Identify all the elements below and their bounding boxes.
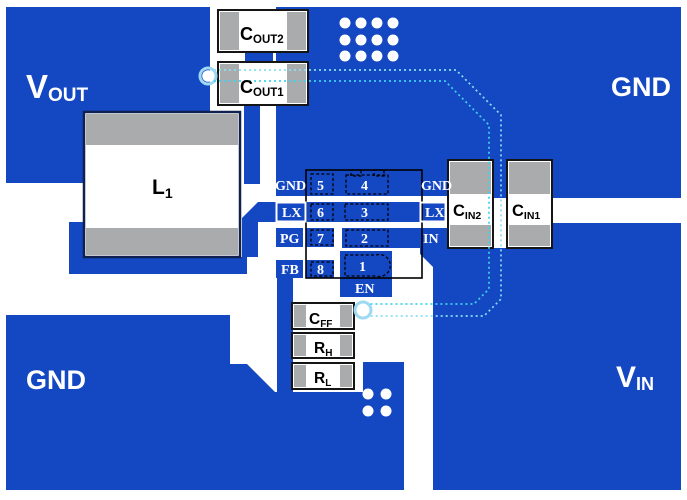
pin6-lx-label: LX bbox=[282, 206, 301, 221]
pin2-number: 2 bbox=[361, 232, 368, 247]
pin7-number: 7 bbox=[317, 232, 324, 247]
pin5-number: 5 bbox=[317, 179, 324, 194]
inductor-pedestal-pad bbox=[69, 257, 247, 274]
vin-copper-pour bbox=[420, 248, 681, 490]
rl-right-terminal bbox=[340, 365, 352, 387]
rl-left-terminal bbox=[294, 365, 306, 387]
rh-left-terminal bbox=[294, 335, 306, 356]
vout-sense-via bbox=[200, 68, 216, 84]
pin5-gnd-label: GND bbox=[275, 179, 306, 194]
pin8-fb-label: FB bbox=[281, 263, 299, 278]
pcb-board-svg: VOUT GND GND VIN COUT2 COUT1 L1 CIN2 CIN… bbox=[0, 0, 687, 500]
vin-pour-right-of-cin1 bbox=[552, 223, 681, 249]
pin3-lx-label: LX bbox=[425, 206, 444, 221]
gnd-top-right-net-label: GND bbox=[611, 72, 671, 102]
gnd-bottom-left-net-label: GND bbox=[26, 365, 86, 395]
cin2-bottom-terminal bbox=[450, 225, 491, 246]
pin2-in-label: IN bbox=[423, 232, 439, 247]
pin4-gnd-label: GND bbox=[421, 179, 452, 194]
cff-right-terminal bbox=[340, 305, 352, 327]
cin1-top-terminal bbox=[509, 162, 550, 194]
pin6-number: 6 bbox=[317, 206, 324, 221]
inductor-pedestal-left-arm bbox=[69, 222, 84, 258]
pin1-en-label: EN bbox=[355, 282, 374, 297]
cin2-top-terminal bbox=[450, 162, 491, 194]
cff-left-terminal bbox=[294, 305, 306, 327]
pin7-pg-label: PG bbox=[280, 232, 300, 247]
cin1-bottom-terminal bbox=[509, 225, 550, 246]
cout2-right-terminal bbox=[287, 12, 306, 50]
pin1-number: 1 bbox=[359, 260, 366, 275]
fb-trace-to-divider bbox=[277, 278, 293, 392]
pcb-layout-diagram: VOUT GND GND VIN COUT2 COUT1 L1 CIN2 CIN… bbox=[0, 0, 687, 500]
lx-limb-to-inductor bbox=[242, 202, 258, 257]
pin4-number: 4 bbox=[361, 179, 368, 194]
cout2-left-terminal bbox=[220, 12, 239, 50]
l1-top-terminal bbox=[86, 114, 238, 145]
pin3-number: 3 bbox=[361, 206, 368, 221]
pin8-number: 8 bbox=[317, 263, 324, 278]
feedback-via bbox=[355, 302, 371, 318]
l1-bottom-terminal bbox=[86, 228, 238, 255]
trace-below-cout1 bbox=[244, 104, 260, 184]
rh-right-terminal bbox=[340, 335, 352, 356]
